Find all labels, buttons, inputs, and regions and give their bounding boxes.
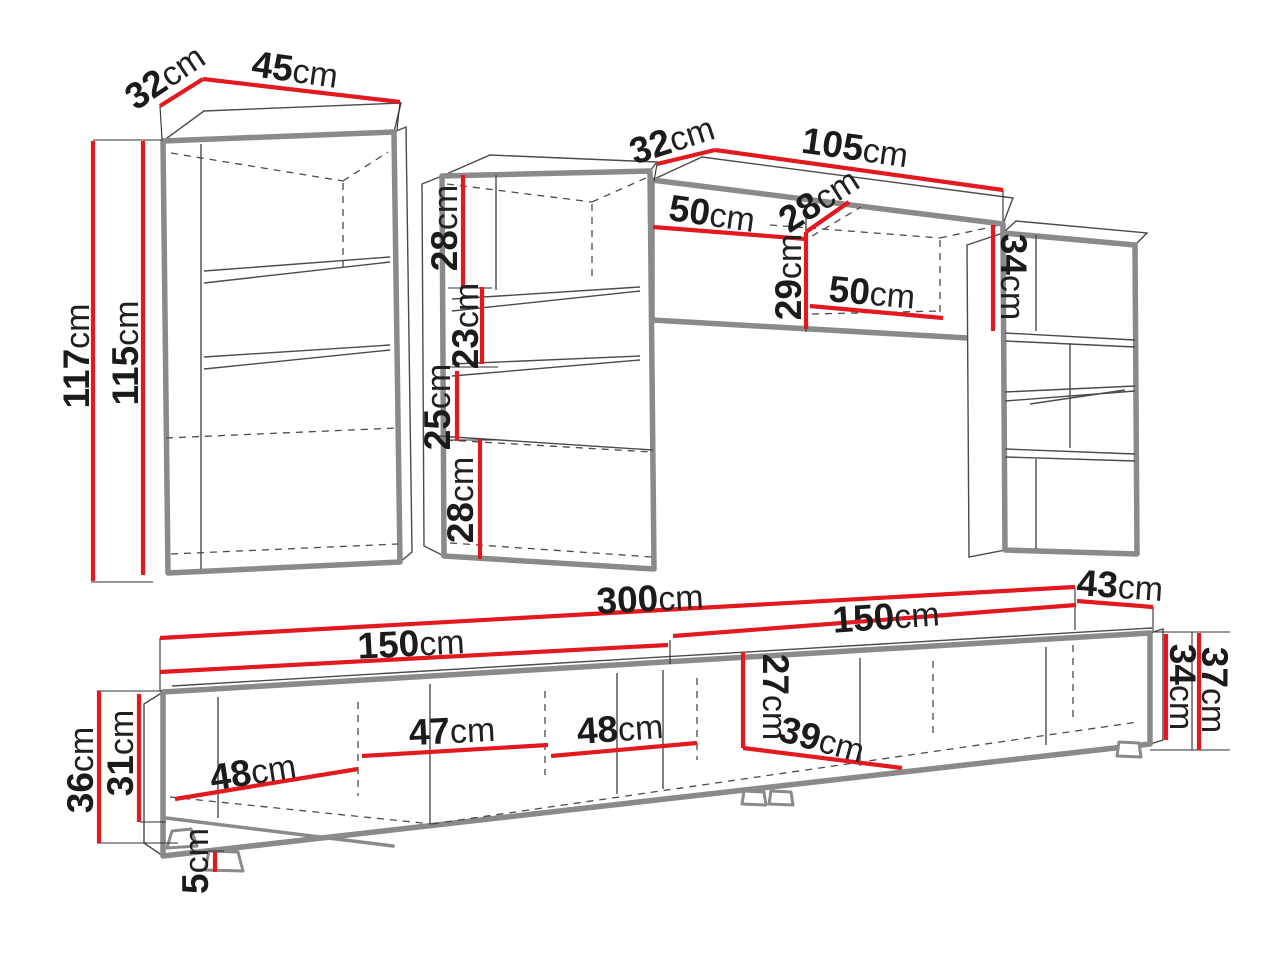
dim-label-wall-inner-height: 29cm [768, 234, 809, 320]
dim-label-stand-height: 36cm [60, 727, 101, 813]
diagram-canvas: 32cm 45cm 117cm 115cm 28cm 23cm 25cm 28c… [0, 0, 1280, 960]
dim-label-mid-sec4: 28cm [440, 457, 481, 543]
dim-label-stand-inner-height: 31cm [100, 710, 141, 796]
dim-label-stand-foot-height: 5cm [175, 828, 216, 894]
dim-label-mid-sec1: 28cm [424, 185, 465, 271]
tv-stand-foot [769, 791, 793, 805]
dim-label-left-height-inner: 115cm [105, 300, 146, 405]
dim-label-stand-comp3: 48cm [575, 705, 664, 752]
tv-stand-foot [742, 791, 766, 805]
tv-stand-side-face [144, 692, 163, 856]
dim-label-stand-comp2: 47cm [408, 708, 497, 753]
extension-line [160, 106, 162, 139]
dim-label-left-height-outer: 117cm [56, 303, 97, 408]
dim-label-wall-height: 34cm [993, 234, 1034, 320]
furniture-dimension-diagram: 32cm 45cm 117cm 115cm 28cm 23cm 25cm 28c… [0, 0, 1280, 960]
dim-label-stand-left-width: 150cm [356, 620, 465, 667]
dim-label-stand-total-width: 300cm [595, 575, 704, 622]
left-cabinet [163, 103, 412, 573]
dim-label-mid-sec2: 23cm [445, 283, 486, 369]
tv-stand-foot [1117, 742, 1141, 757]
dim-label-stand-right-width: 150cm [831, 592, 941, 640]
dim-label-mid-sec3: 25cm [417, 364, 458, 450]
dim-label-stand-depth: 43cm [1075, 562, 1164, 609]
dim-label-stand-total-height: 37cm [1194, 647, 1235, 733]
dim-label-wall-width: 105cm [799, 120, 911, 176]
